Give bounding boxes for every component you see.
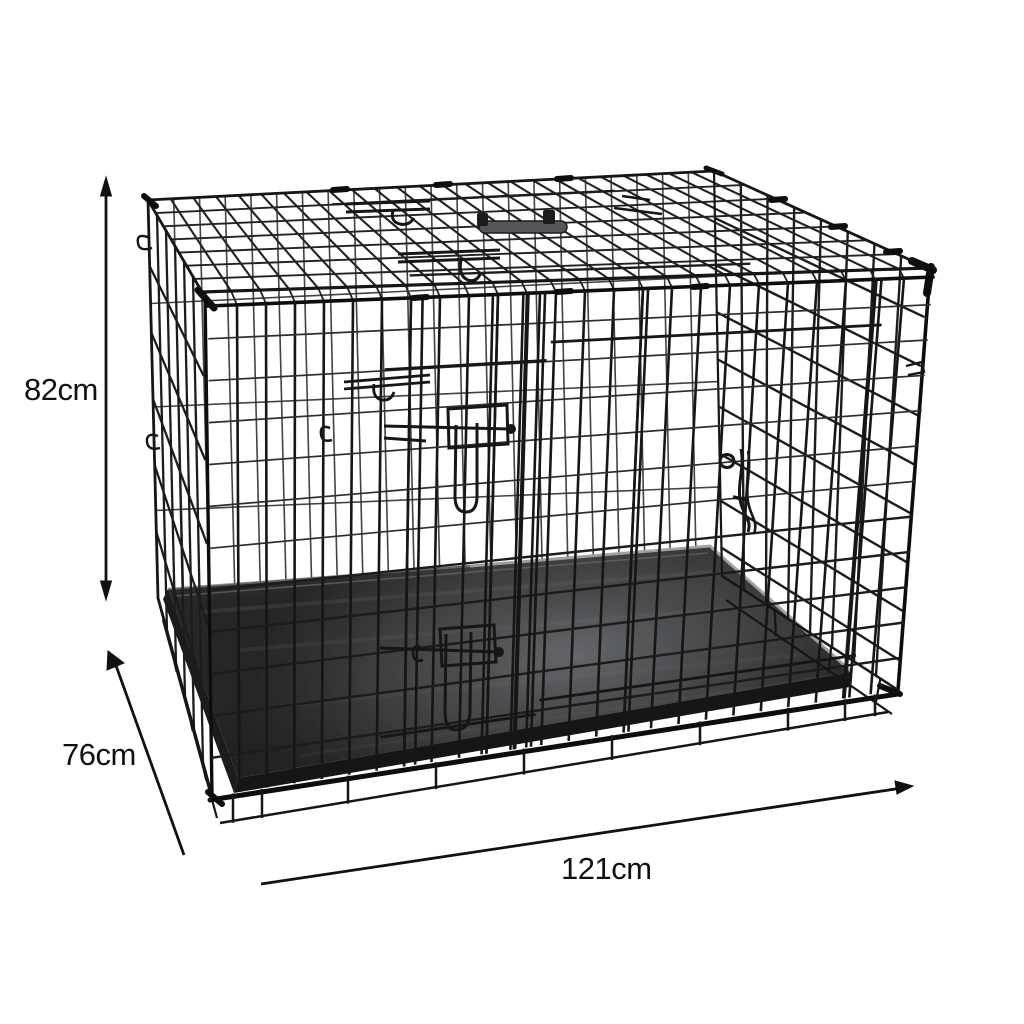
svg-text:76cm: 76cm xyxy=(62,737,136,772)
svg-text:82cm: 82cm xyxy=(24,372,98,407)
svg-text:121cm: 121cm xyxy=(561,851,652,886)
